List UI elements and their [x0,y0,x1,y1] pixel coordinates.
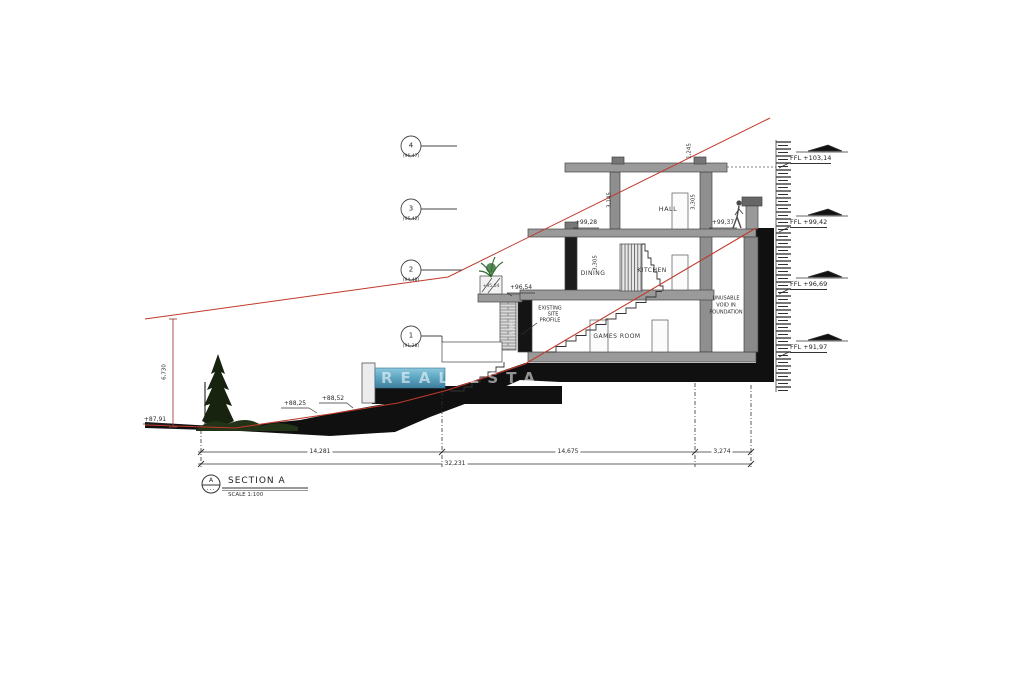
pool-plant-room [442,342,502,362]
mid-floor-slab [520,290,714,300]
section-scale: SCALE 1:100 [228,492,263,498]
void-note-line2: VOID IN [716,304,735,309]
pool-surround-dark-band [372,386,562,404]
chimney-stack [746,206,758,229]
ffl-mark-upper: FFL +99,42 [790,218,827,228]
person-figure [733,200,743,228]
ffl-mark-roof: FFL +103,14 [790,154,831,164]
dim-hall-left: 3,145 [607,192,613,208]
level-slope-a: +88,25 [284,401,306,407]
room-label-hall: HALL [659,206,678,213]
games-door-2 [652,320,668,352]
title-bubble-dots: ... [207,486,216,492]
grid-bubble-3-num: 3 [409,206,413,213]
void-note-line3: FOUNDATION [709,311,742,316]
conifer-tree [196,354,298,431]
pool-terrace-slab [478,294,522,302]
section-title: SECTION A [228,476,286,486]
level-planter: +95,04 [483,285,500,290]
ffl-mark-lower: FFL +91,97 [790,343,827,353]
tree-silhouette [202,354,234,429]
architectural-section-sheet: REAL ESTA HALL DINING KITCHEN GAMES ROOM… [0,0,1024,699]
dim-roof-top: 1,245 [687,143,693,159]
right-exterior-wall [700,172,712,352]
room-label-kitchen: KITCHEN [637,268,667,274]
dim-seg3: 3,274 [711,449,732,455]
dim-hall-right: 3,305 [691,194,697,210]
roof-upstand-left [612,157,624,164]
level-slope-b: +88,52 [322,396,344,402]
grid-bubble-4-num: 4 [409,143,413,150]
games-left-wall [518,300,532,352]
level-ground-left: +87,91 [144,417,166,423]
dim-seg2: 14,675 [556,449,581,455]
grid-bubble-1-num: 1 [409,333,413,340]
dim-left-height: 6,730 [162,364,168,380]
dim-seg1: 14,281 [308,449,333,455]
upper-floor-slab [528,229,756,237]
roof-slab [565,163,727,172]
grid-bubble-2-num: 2 [409,267,413,274]
room-label-games: GAMES ROOM [593,334,640,340]
roof-upstand-right [694,157,706,164]
ffl-mark-mid: FFL +96,69 [790,280,827,290]
room-label-dining: DINING [581,271,606,277]
grid-bubble-4-level: (96,47) [403,155,419,160]
grid-bubble-3-level: (95,42) [403,218,419,223]
void-right-wall [744,237,758,352]
chimney-cap [742,197,762,206]
grid-level-bubbles [401,136,462,346]
watermark: REAL ESTA [381,371,543,386]
level-terrace-pool: +96,54 [510,285,532,291]
grid-bubble-1-level: (91,28) [403,345,419,350]
void-note-line1: UNUSABLE [712,297,739,302]
title-bubble-letter: A [209,478,213,484]
level-dining-roof: +99,28 [575,220,597,226]
games-floor-slab [528,352,756,362]
left-height-dim-line [169,319,177,427]
level-terrace-right: +99,37 [712,220,734,226]
dim-total: 32,231 [443,461,468,467]
dim-pier: 3,335 [510,320,516,336]
existing-profile-note-3: PROFILE [540,319,561,324]
section-drawing-canvas [0,0,1024,699]
dim-dining: 3,305 [593,255,599,271]
grid-bubble-2-level: (94,48) [403,279,419,284]
dining-left-wall [565,237,577,291]
